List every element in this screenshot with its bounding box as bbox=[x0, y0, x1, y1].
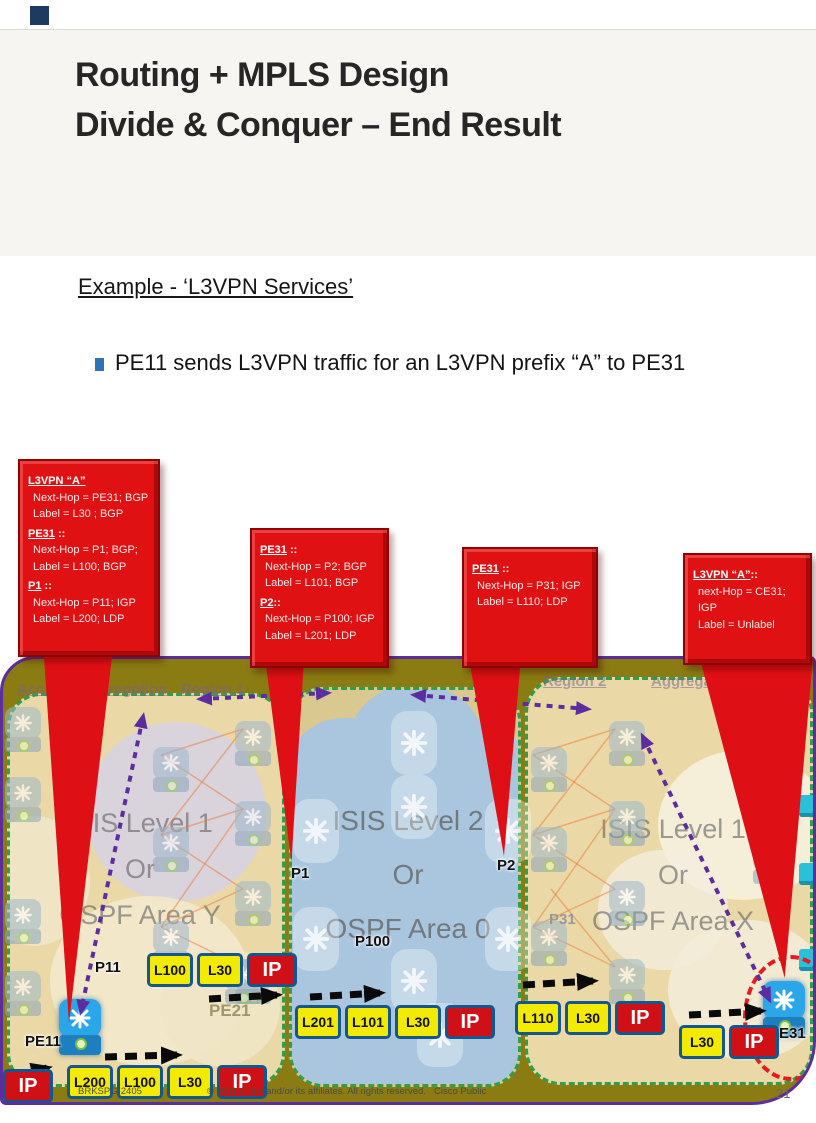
router-icon bbox=[531, 827, 567, 875]
igp-line: OSPF Area X bbox=[548, 898, 798, 944]
router-icon bbox=[5, 899, 41, 947]
callout-heading: PE31 :: bbox=[260, 542, 379, 559]
callout-heading: PE31 :: bbox=[472, 561, 588, 578]
example-heading: Example - ‘L3VPN Services’ bbox=[78, 274, 353, 300]
footer-classification: Cisco Public bbox=[434, 1086, 486, 1097]
callout-section: L3VPN “A”:: next-Hop = CE31; IGPLabel = … bbox=[693, 567, 802, 633]
callout-heading: L3VPN “A” bbox=[28, 473, 150, 490]
callout-heading: PE31 :: bbox=[28, 526, 150, 543]
callout-heading: L3VPN “A”:: bbox=[693, 567, 802, 584]
callout-line: Next-Hop = P1; BGP; bbox=[28, 542, 150, 559]
mpls-label: L100 bbox=[147, 953, 193, 987]
callout-heading: P1 :: bbox=[28, 578, 150, 595]
callout-p1-forwarding: PE31 :: Next-Hop = P2; BGPLabel = L101; … bbox=[250, 528, 389, 668]
network-diagram: ISIS Level 1 Or OSPF Area Y ISIS Level 2… bbox=[0, 656, 816, 1105]
callout-line: Label = L110; LDP bbox=[472, 594, 588, 611]
router-icon bbox=[235, 721, 271, 769]
callout-heading: P2:: bbox=[260, 595, 379, 612]
core-router-icon bbox=[391, 711, 437, 775]
node-label-p11: P11 bbox=[95, 959, 121, 976]
router-icon bbox=[153, 747, 189, 795]
callout-section: P2:: Next-Hop = P100; IGPLabel = L201; L… bbox=[260, 595, 379, 645]
node-label-p100: P100 bbox=[355, 933, 390, 950]
callout-section: PE31 :: Next-Hop = P1; BGP;Label = L100;… bbox=[28, 526, 150, 576]
mpls-label: L30 bbox=[197, 953, 243, 987]
callout-line: Label = Unlabel bbox=[693, 617, 802, 634]
slide-title-line-1: Routing + MPLS Design bbox=[75, 50, 561, 100]
pe11-router-icon bbox=[59, 999, 101, 1057]
callout-line: next-Hop = CE31; IGP bbox=[693, 584, 802, 617]
callout-line: Next-Hop = P31; IGP bbox=[472, 578, 588, 595]
access-node-icon bbox=[799, 795, 816, 817]
slide-logo-square bbox=[30, 6, 49, 25]
core-router-icon bbox=[293, 799, 339, 863]
core-router-icon bbox=[485, 907, 531, 971]
slide-title-line-2: Divide & Conquer – End Result bbox=[75, 100, 561, 150]
callout-line: Label = L30 ; BGP bbox=[28, 506, 150, 523]
label-stack-core: L201L101L30IP bbox=[295, 1005, 499, 1039]
callout-section: L3VPN “A” Next-Hop = PE31; BGPLabel = L3… bbox=[28, 473, 150, 523]
mpls-label: L30 bbox=[679, 1025, 725, 1059]
zone-label-region2: Region 2 bbox=[543, 673, 606, 690]
mpls-label: L30 bbox=[395, 1005, 441, 1039]
router-icon bbox=[153, 827, 189, 875]
callout-line: Next-Hop = P100; IGP bbox=[260, 611, 379, 628]
callout-section: PE31 :: Next-Hop = P2; BGPLabel = L101; … bbox=[260, 542, 379, 592]
igp-line: Or bbox=[20, 846, 260, 892]
callout-pe11-forwarding: L3VPN “A” Next-Hop = PE31; BGPLabel = L3… bbox=[18, 459, 160, 657]
mpls-label: IP bbox=[247, 953, 297, 987]
node-label-p2: P2 bbox=[497, 857, 515, 874]
bullet-marker-icon bbox=[95, 358, 104, 371]
router-icon bbox=[609, 881, 645, 929]
slide-title: Routing + MPLS Design Divide & Conquer –… bbox=[75, 50, 561, 150]
node-label-pe11: PE11 bbox=[25, 1033, 61, 1050]
label-stack-p11: L100L30IP bbox=[147, 953, 301, 987]
label-stack-region2: L110L30IP bbox=[515, 1001, 669, 1035]
router-icon bbox=[235, 801, 271, 849]
igp-line: OSPF Area Y bbox=[20, 892, 260, 938]
router-icon bbox=[235, 881, 271, 929]
mpls-label: L30 bbox=[565, 1001, 611, 1035]
callout-line: Label = L100; BGP bbox=[28, 559, 150, 576]
mpls-label: IP bbox=[3, 1069, 53, 1103]
callout-line: Label = L200; LDP bbox=[28, 611, 150, 628]
label-stack-ingress: IP bbox=[3, 1069, 57, 1103]
callout-section: P1 :: Next-Hop = P11; IGPLabel = L200; L… bbox=[28, 578, 150, 628]
core-router-icon bbox=[391, 775, 437, 839]
mpls-label: IP bbox=[729, 1025, 779, 1059]
router-icon bbox=[5, 971, 41, 1019]
access-node-icon bbox=[799, 863, 816, 885]
bullet-text: PE11 sends L3VPN traffic for an L3VPN pr… bbox=[115, 350, 685, 376]
router-icon bbox=[5, 777, 41, 825]
label-stack-pe31: L30IP bbox=[679, 1025, 783, 1059]
slide: Routing + MPLS Design Divide & Conquer –… bbox=[0, 0, 816, 1123]
mpls-label: L110 bbox=[515, 1001, 561, 1035]
router-icon bbox=[5, 707, 41, 755]
node-label-pe21: PE21 bbox=[209, 1001, 251, 1021]
mpls-label: IP bbox=[615, 1001, 665, 1035]
callout-line: Label = L101; BGP bbox=[260, 575, 379, 592]
router-icon bbox=[609, 721, 645, 769]
callout-p2-forwarding: PE31 :: Next-Hop = P31; IGPLabel = L110;… bbox=[462, 547, 598, 668]
mpls-label: IP bbox=[445, 1005, 495, 1039]
callout-line: Next-Hop = P11; IGP bbox=[28, 595, 150, 612]
bullet-row: PE11 sends L3VPN traffic for an L3VPN pr… bbox=[95, 350, 685, 376]
footer-session-id: BRKSPG-2405 bbox=[78, 1086, 142, 1097]
footer-copyright: © 2011 Cisco and/or its affiliates. All … bbox=[207, 1086, 426, 1097]
callout-line: Label = L201; LDP bbox=[260, 628, 379, 645]
mpls-label: L101 bbox=[345, 1005, 391, 1039]
router-icon bbox=[609, 959, 645, 1007]
router-icon bbox=[609, 801, 645, 849]
callout-section: PE31 :: Next-Hop = P31; IGPLabel = L110;… bbox=[472, 561, 588, 611]
zone-label-region1: Region 1 bbox=[181, 681, 244, 698]
callout-line: Next-Hop = P2; BGP bbox=[260, 559, 379, 576]
node-label-p31: P31 bbox=[549, 911, 576, 928]
page-number: 21 bbox=[776, 1086, 790, 1101]
mpls-label: L201 bbox=[295, 1005, 341, 1039]
node-label-p1: P1 bbox=[291, 865, 309, 882]
callout-line: Next-Hop = PE31; BGP bbox=[28, 490, 150, 507]
router-icon bbox=[531, 921, 567, 969]
callout-pe31-forwarding: L3VPN “A”:: next-Hop = CE31; IGPLabel = … bbox=[683, 553, 812, 665]
router-icon bbox=[531, 747, 567, 795]
